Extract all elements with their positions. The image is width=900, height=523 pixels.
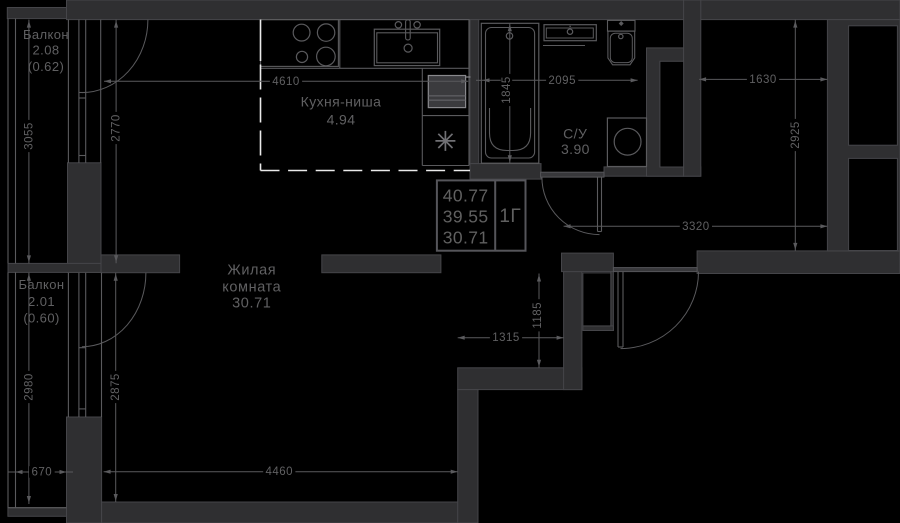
svg-text:3320: 3320	[682, 221, 710, 233]
svg-text:30.71: 30.71	[443, 228, 489, 248]
svg-text:30.71: 30.71	[232, 296, 271, 312]
svg-text:комната: комната	[222, 279, 281, 295]
svg-text:1315: 1315	[492, 332, 520, 344]
svg-text:3055: 3055	[23, 122, 35, 150]
svg-text:1Г: 1Г	[499, 206, 521, 227]
svg-text:2875: 2875	[110, 373, 122, 401]
svg-text:(0.62): (0.62)	[28, 59, 64, 74]
svg-text:1630: 1630	[749, 74, 777, 86]
svg-text:1845: 1845	[501, 76, 513, 104]
svg-text:4.94: 4.94	[327, 112, 356, 128]
svg-text:4610: 4610	[272, 76, 300, 88]
svg-text:39.55: 39.55	[443, 206, 489, 226]
svg-text:1185: 1185	[532, 302, 544, 329]
svg-text:Балкон: Балкон	[23, 27, 69, 42]
svg-text:Кухня-ниша: Кухня-ниша	[301, 94, 382, 110]
svg-text:(0.60): (0.60)	[23, 311, 59, 326]
svg-text:2925: 2925	[790, 121, 802, 149]
svg-text:С/У: С/У	[563, 126, 587, 142]
svg-text:4460: 4460	[266, 466, 294, 478]
svg-text:2.08: 2.08	[33, 43, 60, 58]
svg-text:2980: 2980	[23, 373, 35, 401]
svg-text:Балкон: Балкон	[19, 277, 65, 292]
svg-text:Жилая: Жилая	[227, 262, 276, 278]
svg-text:2770: 2770	[111, 114, 123, 142]
svg-text:2.01: 2.01	[28, 294, 55, 309]
svg-text:2095: 2095	[548, 75, 576, 87]
svg-text:3.90: 3.90	[561, 141, 590, 157]
svg-text:40.77: 40.77	[443, 186, 489, 206]
svg-text:670: 670	[31, 467, 52, 479]
